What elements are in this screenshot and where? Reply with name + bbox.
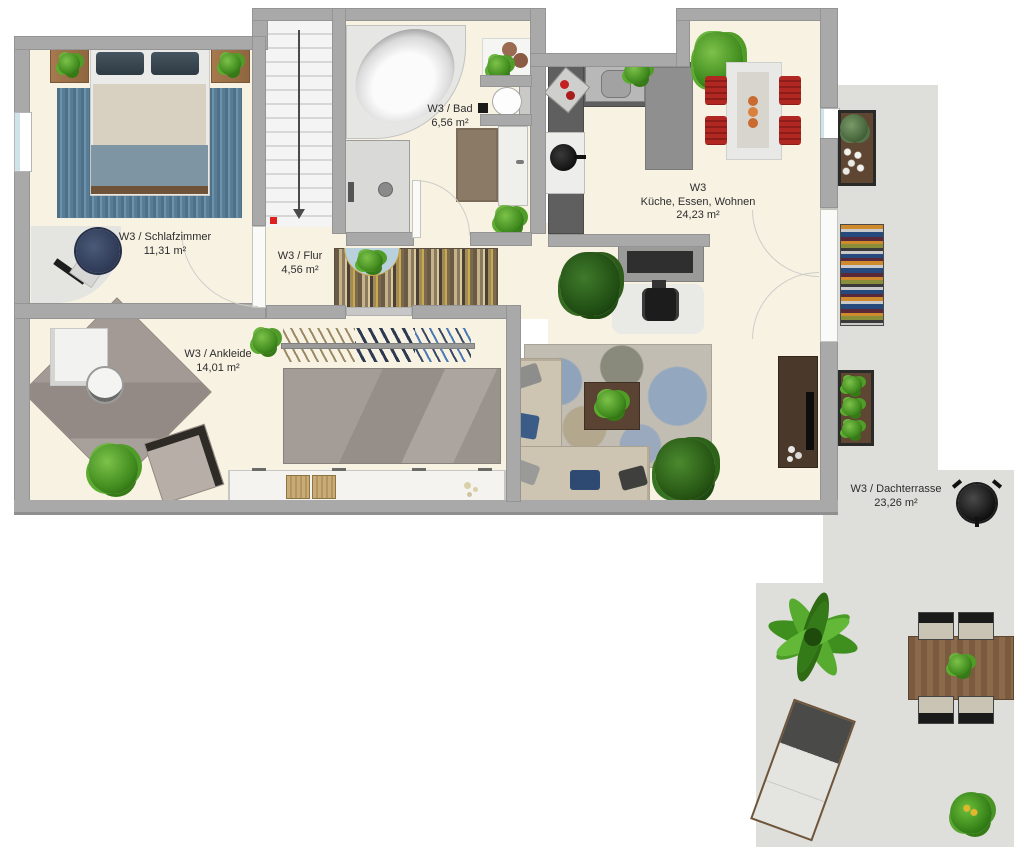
- outdoor-chair: [958, 612, 994, 640]
- room-name: W3 / Ankleide: [184, 348, 251, 362]
- plant-icon: [219, 53, 241, 75]
- kitchen-tall-unit: [645, 67, 693, 170]
- room-label-schlafzimmer: W3 / Schlafzimmer 11,31 m²: [119, 231, 211, 258]
- plant-icon: [948, 654, 972, 676]
- room-area: 14,01 m²: [184, 362, 251, 376]
- room-area: 11,31 m²: [119, 245, 211, 259]
- floorplan-canvas: W3 / Schlafzimmer 11,31 m² W3 / Flur 4,5…: [0, 0, 1024, 857]
- monitor-icon: [627, 251, 693, 273]
- toilet-paper-holder-icon: [478, 103, 488, 113]
- washing-machine-door-knob: [378, 182, 393, 197]
- grill-leg-icon: [975, 517, 979, 527]
- plant-icon: [58, 53, 80, 75]
- cabinet-handle-icon: [332, 468, 346, 471]
- cabinet-handle-icon: [478, 468, 492, 471]
- storage-basket: [312, 475, 336, 499]
- room-label-flur: W3 / Flur 4,56 m²: [278, 250, 323, 277]
- bathroom-bottom-wall-left: [346, 232, 414, 246]
- room-name: Küche, Essen, Wohnen: [641, 196, 756, 210]
- stairs-arrow-head: [293, 209, 305, 219]
- bedroom-right-wall: [252, 36, 266, 226]
- dining-chair-red: [705, 76, 727, 105]
- room-name: W3 / Schlafzimmer: [119, 231, 211, 245]
- bed-footboard: [91, 186, 208, 194]
- plant-icon: [842, 420, 862, 438]
- tomato-icon: [566, 91, 575, 100]
- toilet-niche-wall: [480, 75, 532, 87]
- dining-chair-red: [779, 76, 801, 105]
- outer-wall-right-mid: [820, 138, 838, 208]
- hall-bottom-wall-left: [266, 305, 346, 319]
- bed-pillow-right: [151, 52, 199, 75]
- bathroom-bottom-wall-right: [470, 232, 532, 246]
- planter-flowers-white: [841, 144, 867, 176]
- stool: [86, 366, 124, 404]
- wardrobe-area-rug: [283, 368, 501, 464]
- outdoor-chair: [918, 612, 954, 640]
- sofa-pillow: [570, 470, 600, 490]
- plant-icon: [560, 252, 620, 316]
- terrace-striped-rug: [840, 224, 884, 326]
- office-chair: [642, 288, 679, 321]
- window-right: [820, 108, 840, 140]
- bed-duvet: [93, 84, 206, 148]
- tomato-icon: [560, 80, 569, 89]
- room-unit: W3: [641, 182, 756, 196]
- plant-icon: [842, 376, 862, 394]
- outer-wall-top-right: [676, 8, 822, 21]
- deco-vase-icon: [795, 452, 802, 459]
- towel-roll: [513, 53, 528, 68]
- flower-dots-yellow: [962, 804, 978, 818]
- dining-chair-red: [779, 116, 801, 145]
- bath-mat: [456, 128, 498, 202]
- bed-blanket: [91, 145, 208, 186]
- outer-wall-top-main: [252, 8, 546, 21]
- outer-wall-bottom: [14, 500, 838, 515]
- palm-plant-icon: [750, 574, 876, 704]
- tv-icon: [806, 392, 814, 450]
- cabinet-handle-icon: [252, 468, 266, 471]
- room-label-kueche: W3 Küche, Essen, Wohnen 24,23 m²: [641, 182, 756, 223]
- plant-icon: [840, 114, 868, 142]
- kitchen-half-wall: [548, 234, 710, 247]
- cabinet-handle-icon: [412, 468, 426, 471]
- room-label-dachterrasse: W3 / Dachterrasse 23,26 m²: [850, 483, 941, 510]
- room-area: 4,56 m²: [278, 264, 323, 278]
- window-left: [14, 112, 32, 172]
- notch-wall: [530, 53, 690, 67]
- outer-wall-right-upper: [820, 8, 838, 108]
- plant-icon: [596, 390, 626, 418]
- room-label-bad: W3 / Bad 6,56 m²: [427, 103, 472, 130]
- plant-icon: [252, 328, 278, 354]
- plant-icon: [655, 438, 715, 500]
- hall-bottom-wall-right: [412, 305, 508, 319]
- office-chair: [76, 229, 120, 273]
- room-area: 24,23 m²: [641, 209, 756, 223]
- plant-icon: [842, 398, 862, 416]
- deco-plate-icon: [748, 118, 758, 128]
- outer-wall-right-lower: [820, 340, 838, 502]
- pot-handle-icon: [574, 155, 586, 159]
- cooking-pot-icon: [550, 144, 577, 171]
- bedroom-bottom-wall: [14, 303, 266, 319]
- closet-living-wall: [506, 305, 521, 502]
- bed-pillow-left: [96, 52, 144, 75]
- entry-marker-dot: [270, 217, 277, 224]
- outdoor-chair: [918, 696, 954, 724]
- outdoor-chair: [958, 696, 994, 724]
- clothes-rack-rail: [281, 343, 475, 349]
- faucet-icon: [516, 160, 524, 164]
- deco-vase-icon: [787, 456, 793, 462]
- room-label-ankleide: W3 / Ankleide 14,01 m²: [184, 348, 251, 375]
- outer-wall-left: [14, 36, 30, 515]
- vanity-sink: [498, 126, 528, 206]
- room-name: W3 / Dachterrasse: [850, 483, 941, 497]
- toilet: [492, 87, 522, 116]
- deco-plate-icon: [748, 96, 758, 106]
- deco-vase-icon: [788, 446, 795, 453]
- storage-basket: [286, 475, 310, 499]
- terrace-french-door-leaves: [820, 208, 838, 342]
- dining-chair-red: [705, 116, 727, 145]
- stairwell-right-wall: [332, 8, 346, 234]
- stairs-arrow-line: [298, 30, 300, 210]
- outer-wall-top-bedroom: [14, 36, 264, 50]
- closet-opening-lintel: [346, 307, 412, 316]
- plant-icon: [88, 444, 138, 494]
- room-name: W3 / Bad: [427, 103, 472, 117]
- bathroom-right-wall: [530, 8, 546, 234]
- room-area: 23,26 m²: [850, 497, 941, 511]
- toilet-niche-wall: [480, 114, 532, 126]
- room-name: W3 / Flur: [278, 250, 323, 264]
- washing-machine-handle: [348, 182, 354, 202]
- plant-icon: [494, 206, 524, 234]
- deco-plate-icon: [748, 107, 758, 117]
- deco-flower-icon: [464, 482, 471, 489]
- plant-icon: [357, 250, 383, 272]
- room-area: 6,56 m²: [427, 117, 472, 131]
